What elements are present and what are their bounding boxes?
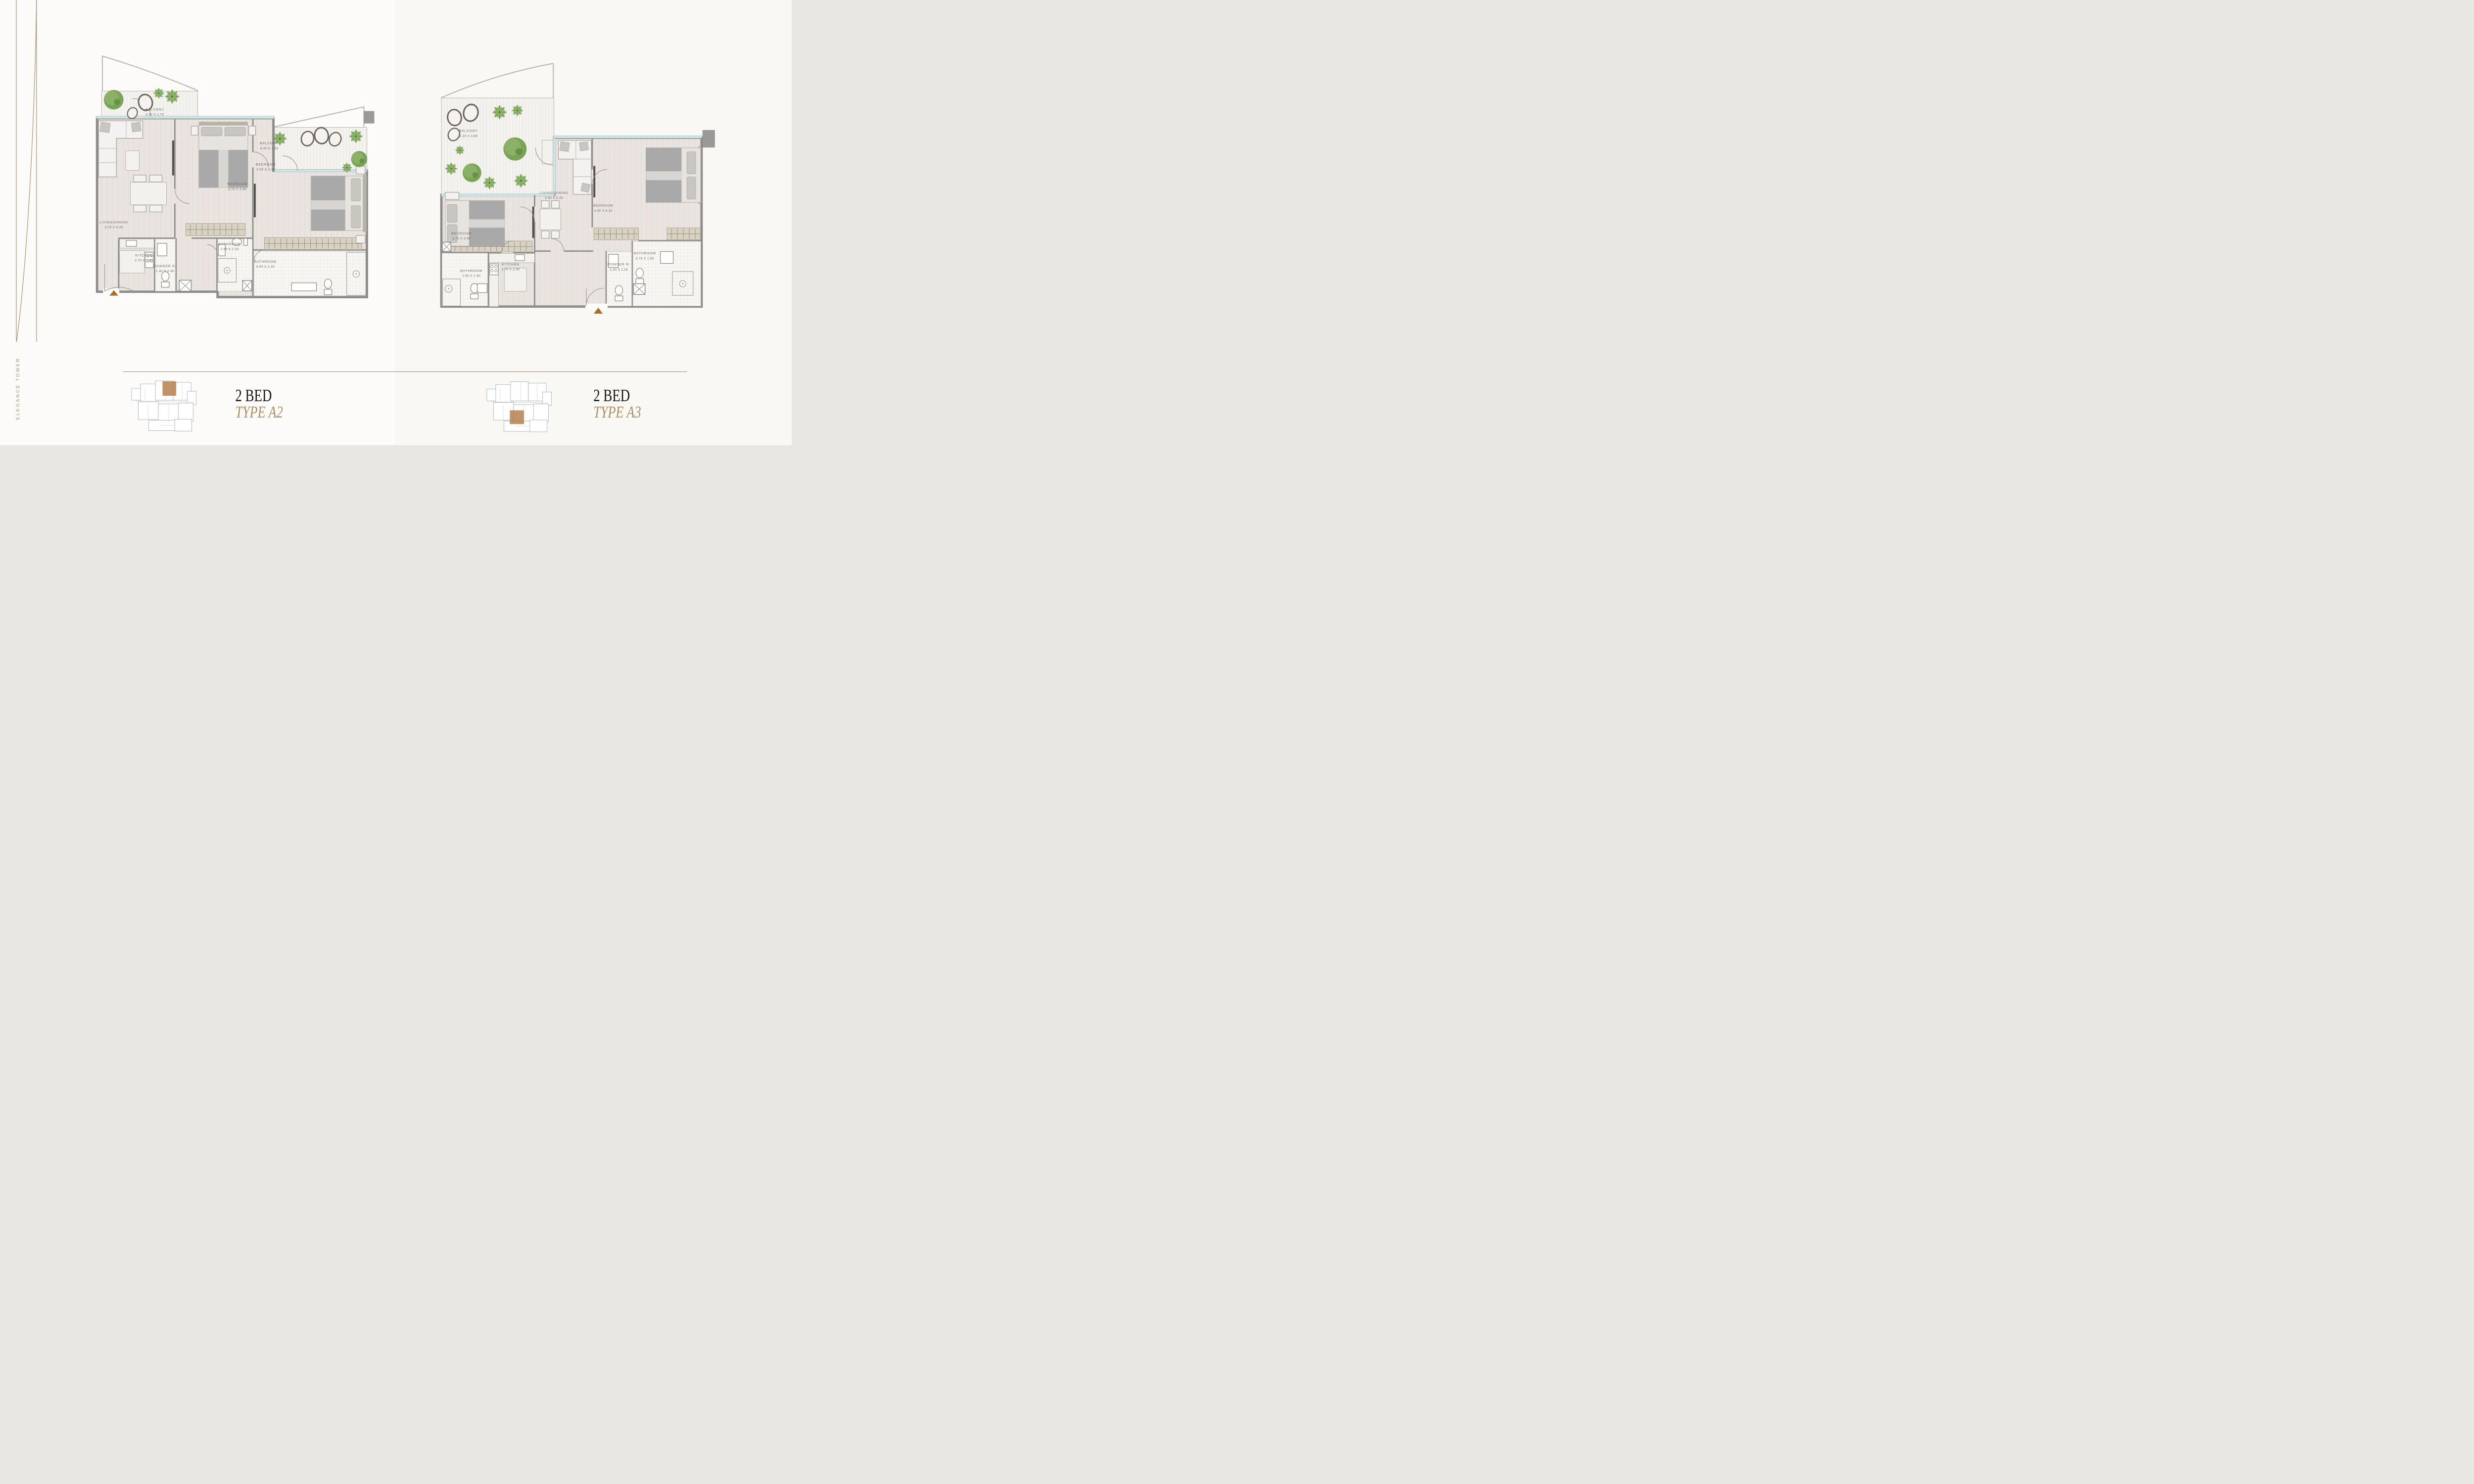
a2-bedroom-mid-dims: 3.70 X 3.90	[228, 187, 246, 191]
a2-living-dims: 3.70 X 5.20	[105, 226, 123, 230]
keyplan-a2	[132, 381, 196, 431]
a2-bedroom-right-dims: 4.50 X 4.40	[257, 168, 275, 172]
keyplan-a2-highlight	[162, 381, 176, 396]
a3-tv-left-icon	[532, 207, 534, 238]
a2-bath1-dims: 2.50 X 2.30	[220, 247, 238, 251]
edge-line-art	[16, 0, 37, 342]
floorplan-a2: BALCONY 4.00 X 1.70 BALCONY 4.40 X 1.50 …	[96, 56, 375, 297]
a3-bath-left-floor	[442, 253, 487, 306]
a3-bath-right-label: BATHROOM	[634, 252, 656, 255]
a3-bedroom-right-dims: 4.30 X 5.20	[594, 209, 613, 213]
a2-balcony1-dims: 4.00 X 1.70	[145, 113, 164, 117]
a3-bath-left-label: BATHROOM	[460, 269, 482, 273]
a2-glazing-top	[96, 116, 274, 119]
a2-bath2-label: BATHROOM	[254, 260, 277, 264]
a2-kitchen-dims: 2.70 X 2.50	[135, 259, 153, 263]
a2-bath1-label: BATHROOM	[219, 242, 241, 246]
title-a2-main: 2 BED	[235, 385, 272, 405]
title-a3-main: 2 BED	[593, 385, 630, 405]
a3-bath-right-dims: 3.70 X 1.50	[636, 257, 654, 260]
a3-powder-label: POWDER R.	[608, 263, 630, 267]
a2-bath2-dims: 4.00 X 2.20	[256, 265, 275, 269]
brochure-page: ELEGANCE TOWER	[0, 0, 792, 445]
a2-bedroom-right-label: BEDROOM	[256, 163, 276, 167]
a3-bedroom-right-label: BEDROOM	[593, 204, 613, 208]
a2-wardrobe-mid	[186, 224, 245, 236]
a2-coffee-table	[126, 151, 140, 171]
a2-tv-mid-icon	[172, 140, 174, 176]
subtitle-a3: TYPE A3	[593, 403, 641, 421]
a3-balcony-label: BALCONY	[459, 130, 478, 133]
a3-powder-dims: 1.30 X 2.30	[610, 268, 628, 272]
a2-powder-label: POWDER R.	[154, 265, 177, 268]
a2-powder-dims: 1.30 X 2.30	[156, 270, 174, 273]
title-a2-sub: TYPE A2	[235, 403, 283, 421]
a2-balcony1-label: BALCONY	[145, 108, 164, 112]
a2-glazing-balcony2	[275, 170, 367, 172]
a3-tv-right-icon	[593, 166, 595, 197]
a2-living-label: LIVING/DINING	[99, 221, 128, 224]
a2-balcony2-label: BALCONY	[260, 142, 279, 145]
a3-balcony-dims: 5.20 X 3.80	[459, 135, 477, 138]
a3-glazing-left	[553, 139, 556, 194]
a2-tv-right-icon	[254, 184, 256, 217]
a3-living-dims: 3.80 X 5.20	[545, 196, 563, 200]
a3-bath-left-dims: 2.50 X 2.90	[462, 274, 480, 278]
a3-shaft-block	[703, 130, 715, 147]
title-a3-sub: TYPE A3	[593, 403, 641, 421]
a2-kitchen-label: KITCHEN	[135, 254, 152, 257]
a2-bed-mid	[191, 122, 255, 187]
page-canvas: ELEGANCE TOWER	[0, 0, 792, 445]
a3-bedroom-left-label: BEDROOM	[451, 232, 471, 235]
a3-art-panel	[542, 140, 553, 164]
a3-bedroom-left-dims: 3.70 X 3.90	[452, 237, 471, 240]
a2-shaft-block	[364, 111, 375, 123]
a2-balcony2-dims: 4.40 X 1.50	[260, 147, 279, 150]
a2-bedroom-mid-label: BEDROOM	[227, 183, 247, 186]
title-a3: 2 BED	[593, 385, 630, 405]
subtitle-a2: TYPE A2	[235, 403, 283, 421]
a3-kitchen-label: KITCHEN	[502, 263, 519, 266]
a3-kitchen-dims: 2.70 X 2.50	[501, 268, 520, 272]
a3-bed-right	[646, 146, 701, 204]
a3-living-label: LIVING/DINING	[540, 191, 569, 195]
a2-sail-left-icon	[102, 56, 198, 91]
title-a2: 2 BED	[235, 385, 272, 405]
a2-wardrobe-right	[265, 237, 362, 249]
keyplan-a3-highlight	[510, 410, 523, 424]
a2-sail-right-icon	[275, 107, 364, 127]
a3-glazing-top	[554, 136, 702, 138]
brand-vertical-text: ELEGANCE TOWER	[15, 357, 20, 420]
